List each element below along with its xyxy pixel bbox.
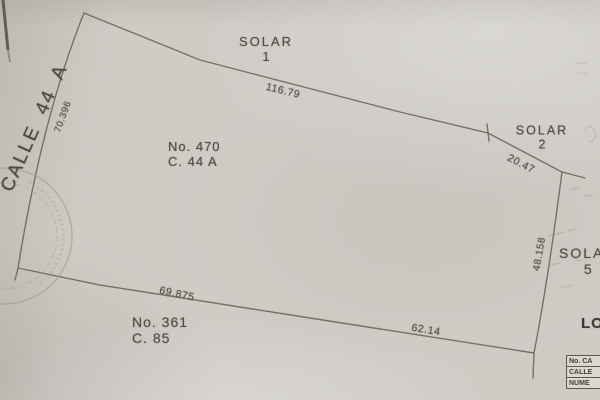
solar-1-label: SOLAR 1 [239,35,293,65]
stamp-arc-text-marks [29,182,63,285]
solar-2-number: 2 [516,138,568,152]
legend-row-numero: NUME [566,377,600,389]
lot-361-number: No. 361 [132,314,188,330]
solar-5-name: SOLAR [559,245,600,261]
boundary-south-line [18,268,534,353]
solar-2-name: SOLAR [516,124,568,138]
solar-5-label: SOLAR 5 [559,245,600,277]
boundary-east-line [533,172,562,378]
lot-361-street: C. 85 [132,330,188,346]
lot-470-number: No. 470 [168,140,221,155]
solar-1-name: SOLAR [239,35,293,50]
solar-5-number: 5 [559,261,600,277]
lot-470-street: C. 44 A [168,155,221,170]
lot-361-label: No. 361 C. 85 [132,314,188,346]
legend-table: No. CA CALLE NUME [566,356,600,389]
segment-tick [487,124,489,141]
scanned-survey-plan: SOLAR 1 SOLAR 2 SOLAR 5 No. 470 C. 44 A … [0,0,600,400]
lot-470-label: No. 470 C. 44 A [168,140,221,170]
legend-title-partial: LO [581,315,600,332]
paper-edge-line [3,0,10,62]
solar-2-label: SOLAR 2 [516,124,568,153]
solar-1-number: 1 [239,50,293,65]
plan-drawing [0,0,600,400]
